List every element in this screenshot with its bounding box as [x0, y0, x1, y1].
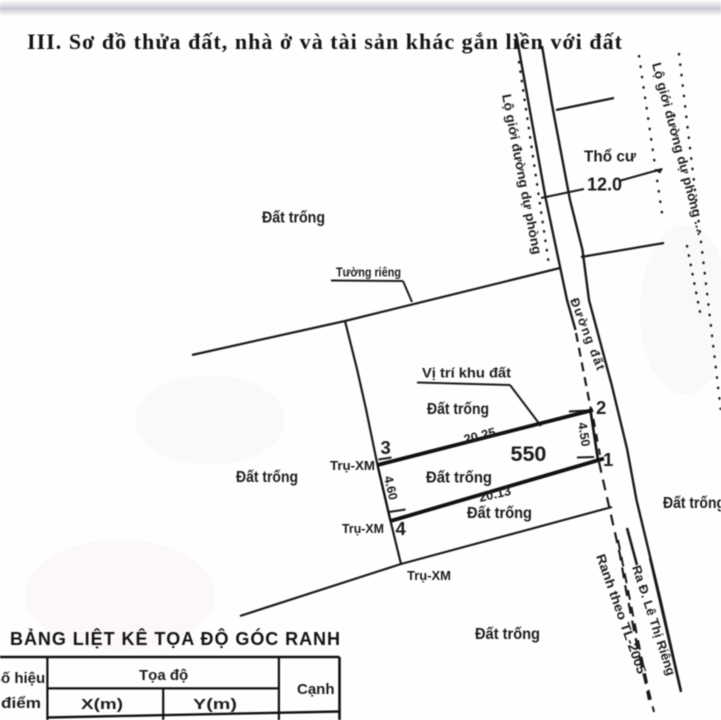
- svg-text:Số hiệu: Số hiệu: [0, 670, 45, 687]
- svg-text:Đất trống: Đất trống: [467, 505, 532, 522]
- svg-text:Đất trống: Đất trống: [262, 210, 325, 227]
- svg-text:550: 550: [511, 442, 547, 466]
- svg-text:Vị trí khu đất: Vị trí khu đất: [422, 365, 511, 381]
- svg-text:Cạnh: Cạnh: [297, 681, 335, 698]
- svg-text:12.0: 12.0: [587, 175, 622, 195]
- svg-text:X(m): X(m): [81, 696, 123, 713]
- svg-text:Đất trống: Đất trống: [427, 401, 489, 418]
- svg-text:Đất trống: Đất trống: [475, 626, 540, 643]
- svg-text:Đất trống: Đất trống: [663, 495, 721, 512]
- svg-text:Trụ-XM: Trụ-XM: [342, 521, 384, 536]
- svg-text:Tọa độ: Tọa độ: [139, 667, 188, 684]
- svg-text:III. Sơ đồ thửa đất, nhà ở và: III. Sơ đồ thửa đất, nhà ở và tài sản kh…: [27, 29, 623, 54]
- svg-text:3: 3: [381, 437, 391, 458]
- svg-text:điểm: điểm: [1, 695, 41, 712]
- svg-text:Đất trống: Đất trống: [426, 470, 492, 487]
- svg-text:Đất trống: Đất trống: [236, 469, 298, 486]
- svg-text:Tường riêng: Tường riêng: [336, 266, 401, 280]
- svg-text:Trụ-XM: Trụ-XM: [407, 568, 451, 583]
- svg-text:1: 1: [603, 449, 613, 470]
- svg-text:Thổ cư: Thổ cư: [584, 148, 636, 166]
- svg-text:2: 2: [596, 397, 606, 418]
- svg-text:4: 4: [396, 518, 407, 539]
- svg-text:Trụ-XM: Trụ-XM: [330, 458, 375, 473]
- svg-text:Y(m): Y(m): [193, 696, 237, 713]
- svg-text:BẢNG LIỆT KÊ TỌA ĐỘ GÓC RANH: BẢNG LIỆT KÊ TỌA ĐỘ GÓC RANH: [10, 628, 340, 649]
